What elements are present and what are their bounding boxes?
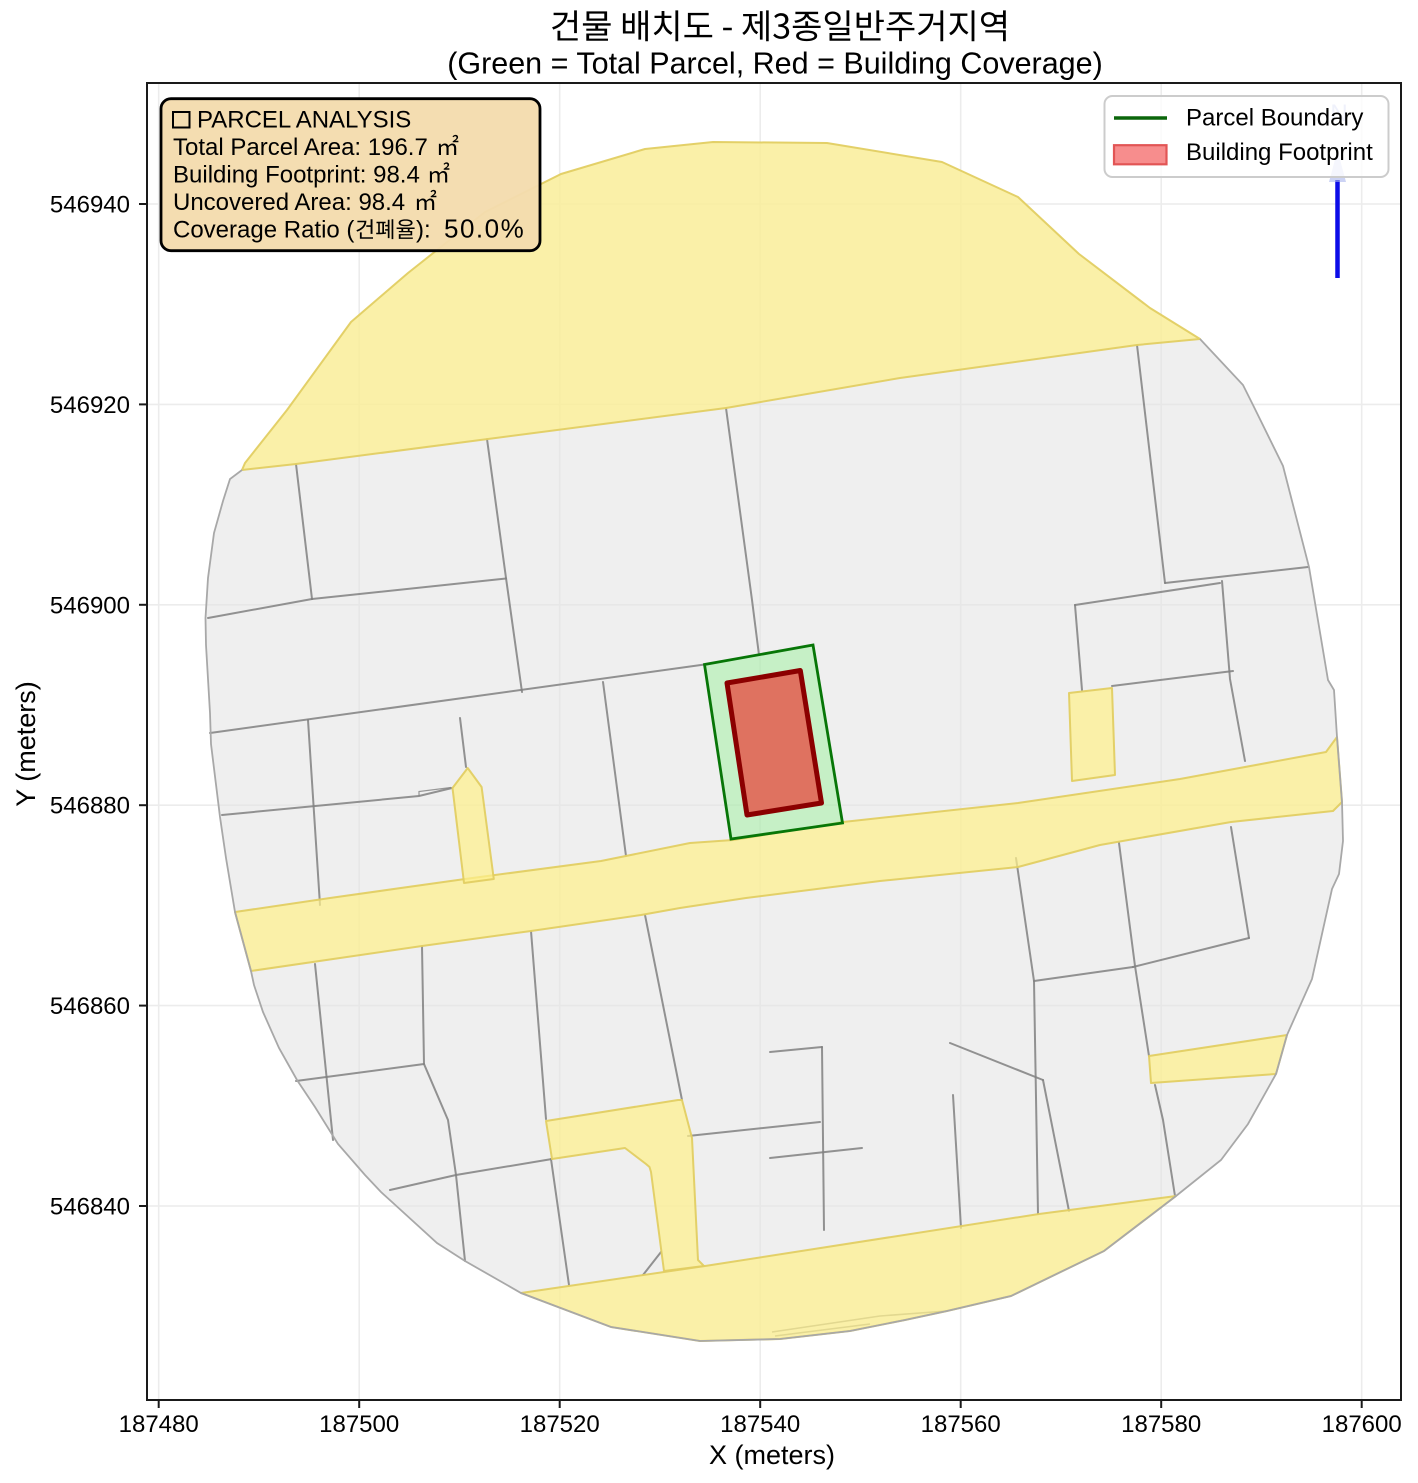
svg-text:187480: 187480 — [119, 1411, 199, 1438]
svg-text:):: ): — [416, 216, 431, 243]
svg-text:546940: 546940 — [50, 192, 130, 219]
svg-text:546920: 546920 — [50, 392, 130, 419]
svg-text:546880: 546880 — [50, 793, 130, 820]
svg-text:Parcel Boundary: Parcel Boundary — [1186, 105, 1363, 132]
svg-text:187600: 187600 — [1322, 1411, 1402, 1438]
svg-text:Building Footprint: 98.4: Building Footprint: 98.4 — [173, 162, 420, 189]
svg-text:187520: 187520 — [520, 1411, 600, 1438]
svg-text:546900: 546900 — [50, 592, 130, 619]
svg-text:Coverage Ratio (: Coverage Ratio ( — [173, 216, 354, 243]
svg-text:546860: 546860 — [50, 993, 130, 1020]
svg-text:187540: 187540 — [720, 1411, 800, 1438]
svg-text:546840: 546840 — [50, 1194, 130, 1221]
svg-text:187560: 187560 — [921, 1411, 1001, 1438]
svg-text:50.0%: 50.0% — [444, 213, 525, 243]
svg-text:(Green = Total Parcel, Red = B: (Green = Total Parcel, Red = Building Co… — [447, 47, 1103, 81]
svg-text:Y (meters): Y (meters) — [11, 681, 41, 807]
svg-text:Uncovered Area: 98.4: Uncovered Area: 98.4 — [173, 189, 405, 216]
svg-text:187580: 187580 — [1121, 1411, 1201, 1438]
svg-text:X (meters): X (meters) — [709, 1440, 835, 1470]
svg-text:187500: 187500 — [319, 1411, 399, 1438]
svg-text:Total Parcel Area: 196.7: Total Parcel Area: 196.7 — [173, 134, 428, 161]
svg-text:Building Footprint: Building Footprint — [1186, 139, 1373, 166]
svg-text:PARCEL ANALYSIS: PARCEL ANALYSIS — [197, 107, 411, 134]
